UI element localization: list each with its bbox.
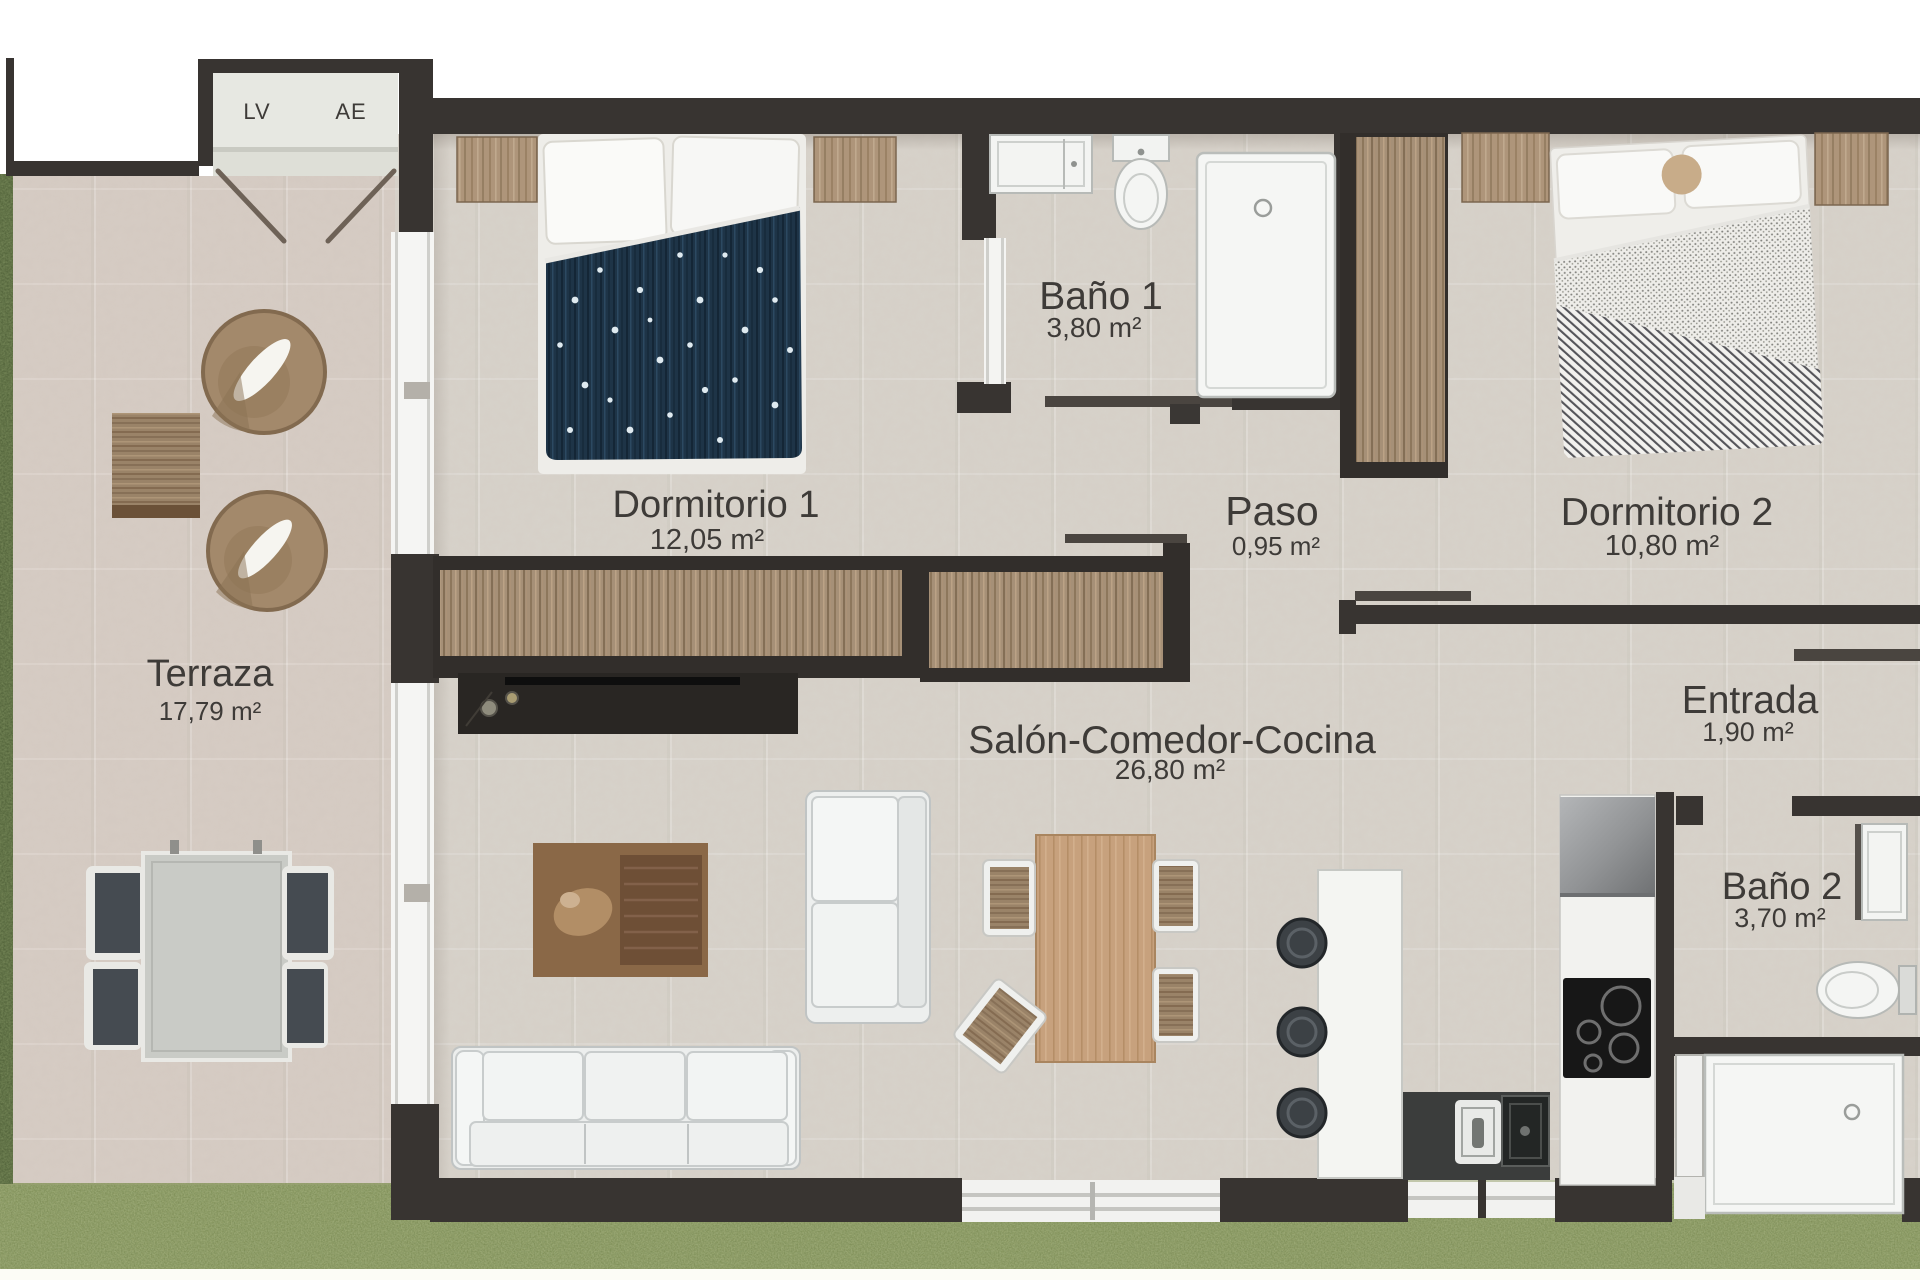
svg-text:1,90 m²: 1,90 m²: [1702, 717, 1794, 747]
svg-text:3,80 m²: 3,80 m²: [1047, 312, 1142, 343]
svg-text:Baño 2: Baño 2: [1722, 866, 1842, 908]
svg-text:26,80 m²: 26,80 m²: [1115, 754, 1226, 785]
svg-text:Dormitorio 2: Dormitorio 2: [1561, 491, 1773, 534]
svg-text:Entrada: Entrada: [1682, 679, 1819, 722]
svg-text:LV: LV: [243, 99, 270, 124]
svg-text:Dormitorio 1: Dormitorio 1: [613, 484, 820, 526]
svg-text:17,79 m²: 17,79 m²: [159, 696, 262, 726]
svg-text:AE: AE: [335, 99, 366, 124]
svg-text:3,70 m²: 3,70 m²: [1734, 903, 1826, 933]
svg-text:12,05 m²: 12,05 m²: [650, 524, 765, 556]
svg-text:Terraza: Terraza: [147, 653, 275, 695]
svg-text:10,80 m²: 10,80 m²: [1605, 530, 1720, 562]
svg-text:Paso: Paso: [1225, 488, 1318, 534]
svg-text:0,95 m²: 0,95 m²: [1232, 531, 1320, 561]
